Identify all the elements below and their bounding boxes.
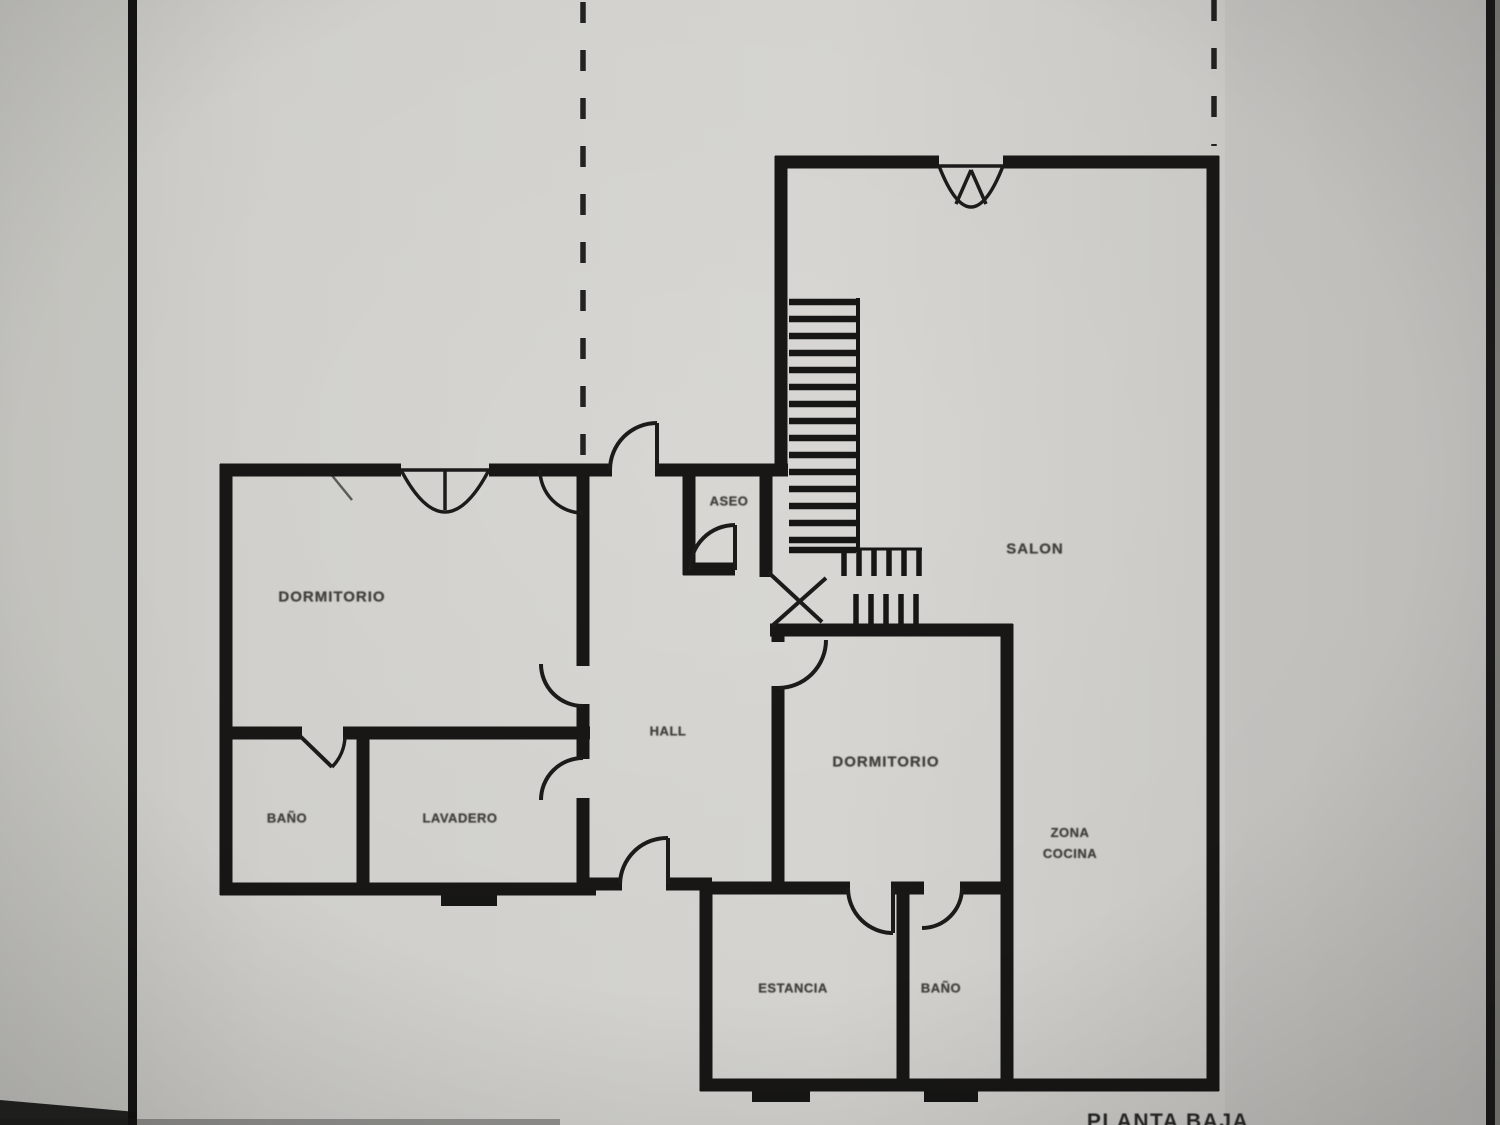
- room-label-bano-2: BAÑO: [921, 981, 961, 996]
- room-label-dormitorio-2: DORMITORIO: [832, 754, 939, 771]
- room-label-bano-1: BAÑO: [267, 811, 307, 826]
- photo-vignette: [0, 0, 1500, 1125]
- room-label-dormitorio-1: DORMITORIO: [278, 589, 385, 606]
- room-label-lavadero: LAVADERO: [422, 811, 497, 826]
- floor-plan-drawing: [0, 0, 1500, 1125]
- floor-plan-photo: DORMITORIO BAÑO LAVADERO HALL ASEO SALON…: [0, 0, 1500, 1125]
- zona-cocina-line-1: ZONA: [1043, 822, 1097, 843]
- room-label-hall: HALL: [650, 724, 687, 739]
- room-label-estancia: ESTANCIA: [758, 981, 827, 996]
- room-label-salon: SALON: [1006, 541, 1064, 558]
- plan-title: PLANTA BAJA: [1087, 1110, 1249, 1125]
- room-label-zona-cocina: ZONA COCINA: [1043, 822, 1097, 864]
- room-label-aseo: ASEO: [710, 494, 749, 509]
- zona-cocina-line-2: COCINA: [1043, 843, 1097, 864]
